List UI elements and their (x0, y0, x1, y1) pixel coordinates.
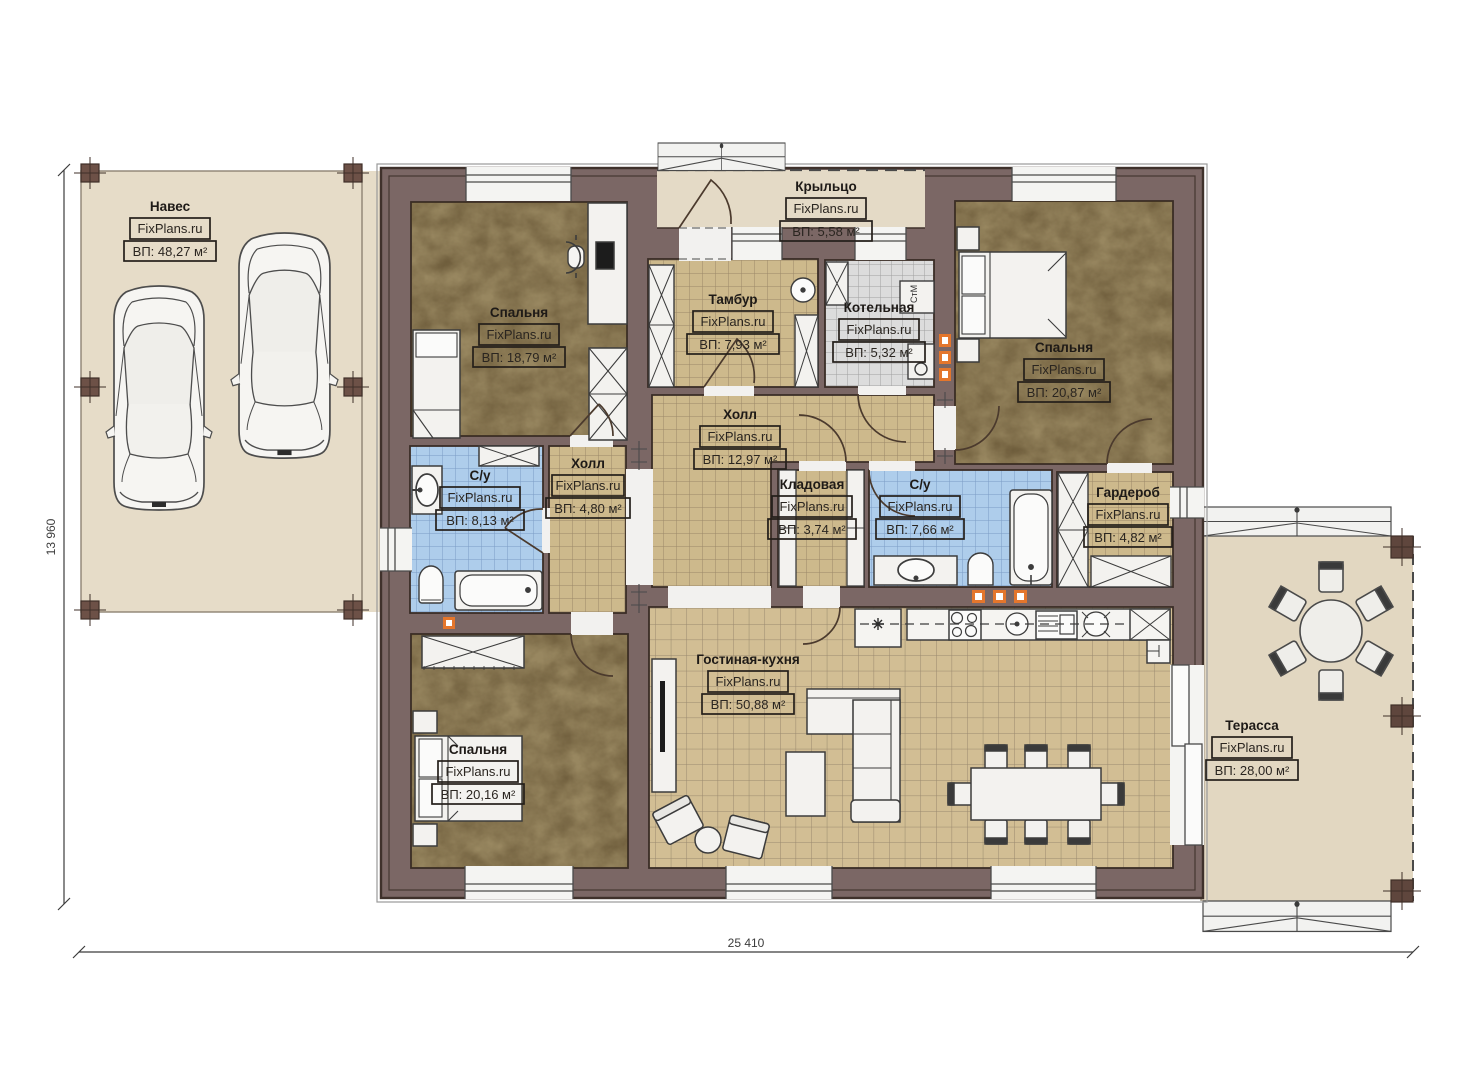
svg-text:FixPlans.ru: FixPlans.ru (447, 490, 512, 505)
svg-text:Холл: Холл (723, 407, 757, 422)
svg-text:FixPlans.ru: FixPlans.ru (445, 764, 510, 779)
svg-text:ВП: 8,13 м²: ВП: 8,13 м² (446, 513, 514, 528)
svg-text:25 410: 25 410 (728, 936, 765, 950)
svg-text:Крыльцо: Крыльцо (795, 179, 856, 194)
svg-text:ВП: 3,74 м²: ВП: 3,74 м² (778, 522, 846, 537)
svg-text:Спальня: Спальня (449, 742, 507, 757)
svg-text:ВП: 4,82 м²: ВП: 4,82 м² (1094, 530, 1162, 545)
svg-text:ВП: 48,27 м²: ВП: 48,27 м² (133, 244, 208, 259)
svg-text:Спальня: Спальня (490, 305, 548, 320)
svg-text:FixPlans.ru: FixPlans.ru (846, 322, 911, 337)
svg-text:FixPlans.ru: FixPlans.ru (1031, 362, 1096, 377)
svg-text:Спальня: Спальня (1035, 340, 1093, 355)
svg-text:FixPlans.ru: FixPlans.ru (137, 221, 202, 236)
svg-text:С/у: С/у (469, 468, 491, 483)
svg-text:FixPlans.ru: FixPlans.ru (1219, 740, 1284, 755)
svg-text:ВП: 7,93 м²: ВП: 7,93 м² (699, 337, 767, 352)
svg-text:FixPlans.ru: FixPlans.ru (707, 429, 772, 444)
svg-text:ВП: 20,16 м²: ВП: 20,16 м² (441, 787, 516, 802)
svg-text:ВП: 50,88 м²: ВП: 50,88 м² (711, 697, 786, 712)
svg-text:Котельная: Котельная (844, 300, 915, 315)
svg-text:ВП: 20,87 м²: ВП: 20,87 м² (1027, 385, 1102, 400)
svg-text:ВП: 12,97 м²: ВП: 12,97 м² (703, 452, 778, 467)
svg-text:ВП: 28,00 м²: ВП: 28,00 м² (1215, 763, 1290, 778)
svg-text:Навес: Навес (150, 199, 191, 214)
svg-text:ВП: 18,79 м²: ВП: 18,79 м² (482, 350, 557, 365)
svg-text:ВП: 4,80 м²: ВП: 4,80 м² (554, 501, 622, 516)
svg-text:FixPlans.ru: FixPlans.ru (1095, 507, 1160, 522)
svg-text:FixPlans.ru: FixPlans.ru (700, 314, 765, 329)
svg-text:FixPlans.ru: FixPlans.ru (793, 201, 858, 216)
svg-text:Гостиная-кухня: Гостиная-кухня (696, 652, 799, 667)
svg-text:ВП: 5,58 м²: ВП: 5,58 м² (792, 224, 860, 239)
svg-text:FixPlans.ru: FixPlans.ru (887, 499, 952, 514)
svg-text:FixPlans.ru: FixPlans.ru (779, 499, 844, 514)
svg-text:ВП: 5,32 м²: ВП: 5,32 м² (845, 345, 913, 360)
svg-text:ВП: 7,66 м²: ВП: 7,66 м² (886, 522, 954, 537)
svg-text:Холл: Холл (571, 456, 605, 471)
svg-text:Терасса: Терасса (1225, 718, 1279, 733)
svg-text:Кладовая: Кладовая (780, 477, 845, 492)
svg-text:FixPlans.ru: FixPlans.ru (555, 478, 620, 493)
svg-text:FixPlans.ru: FixPlans.ru (486, 327, 551, 342)
svg-text:Гардероб: Гардероб (1096, 485, 1160, 500)
svg-text:FixPlans.ru: FixPlans.ru (715, 674, 780, 689)
svg-text:Тамбур: Тамбур (709, 292, 758, 307)
svg-text:С/у: С/у (909, 477, 931, 492)
svg-text:13 960: 13 960 (44, 518, 58, 555)
